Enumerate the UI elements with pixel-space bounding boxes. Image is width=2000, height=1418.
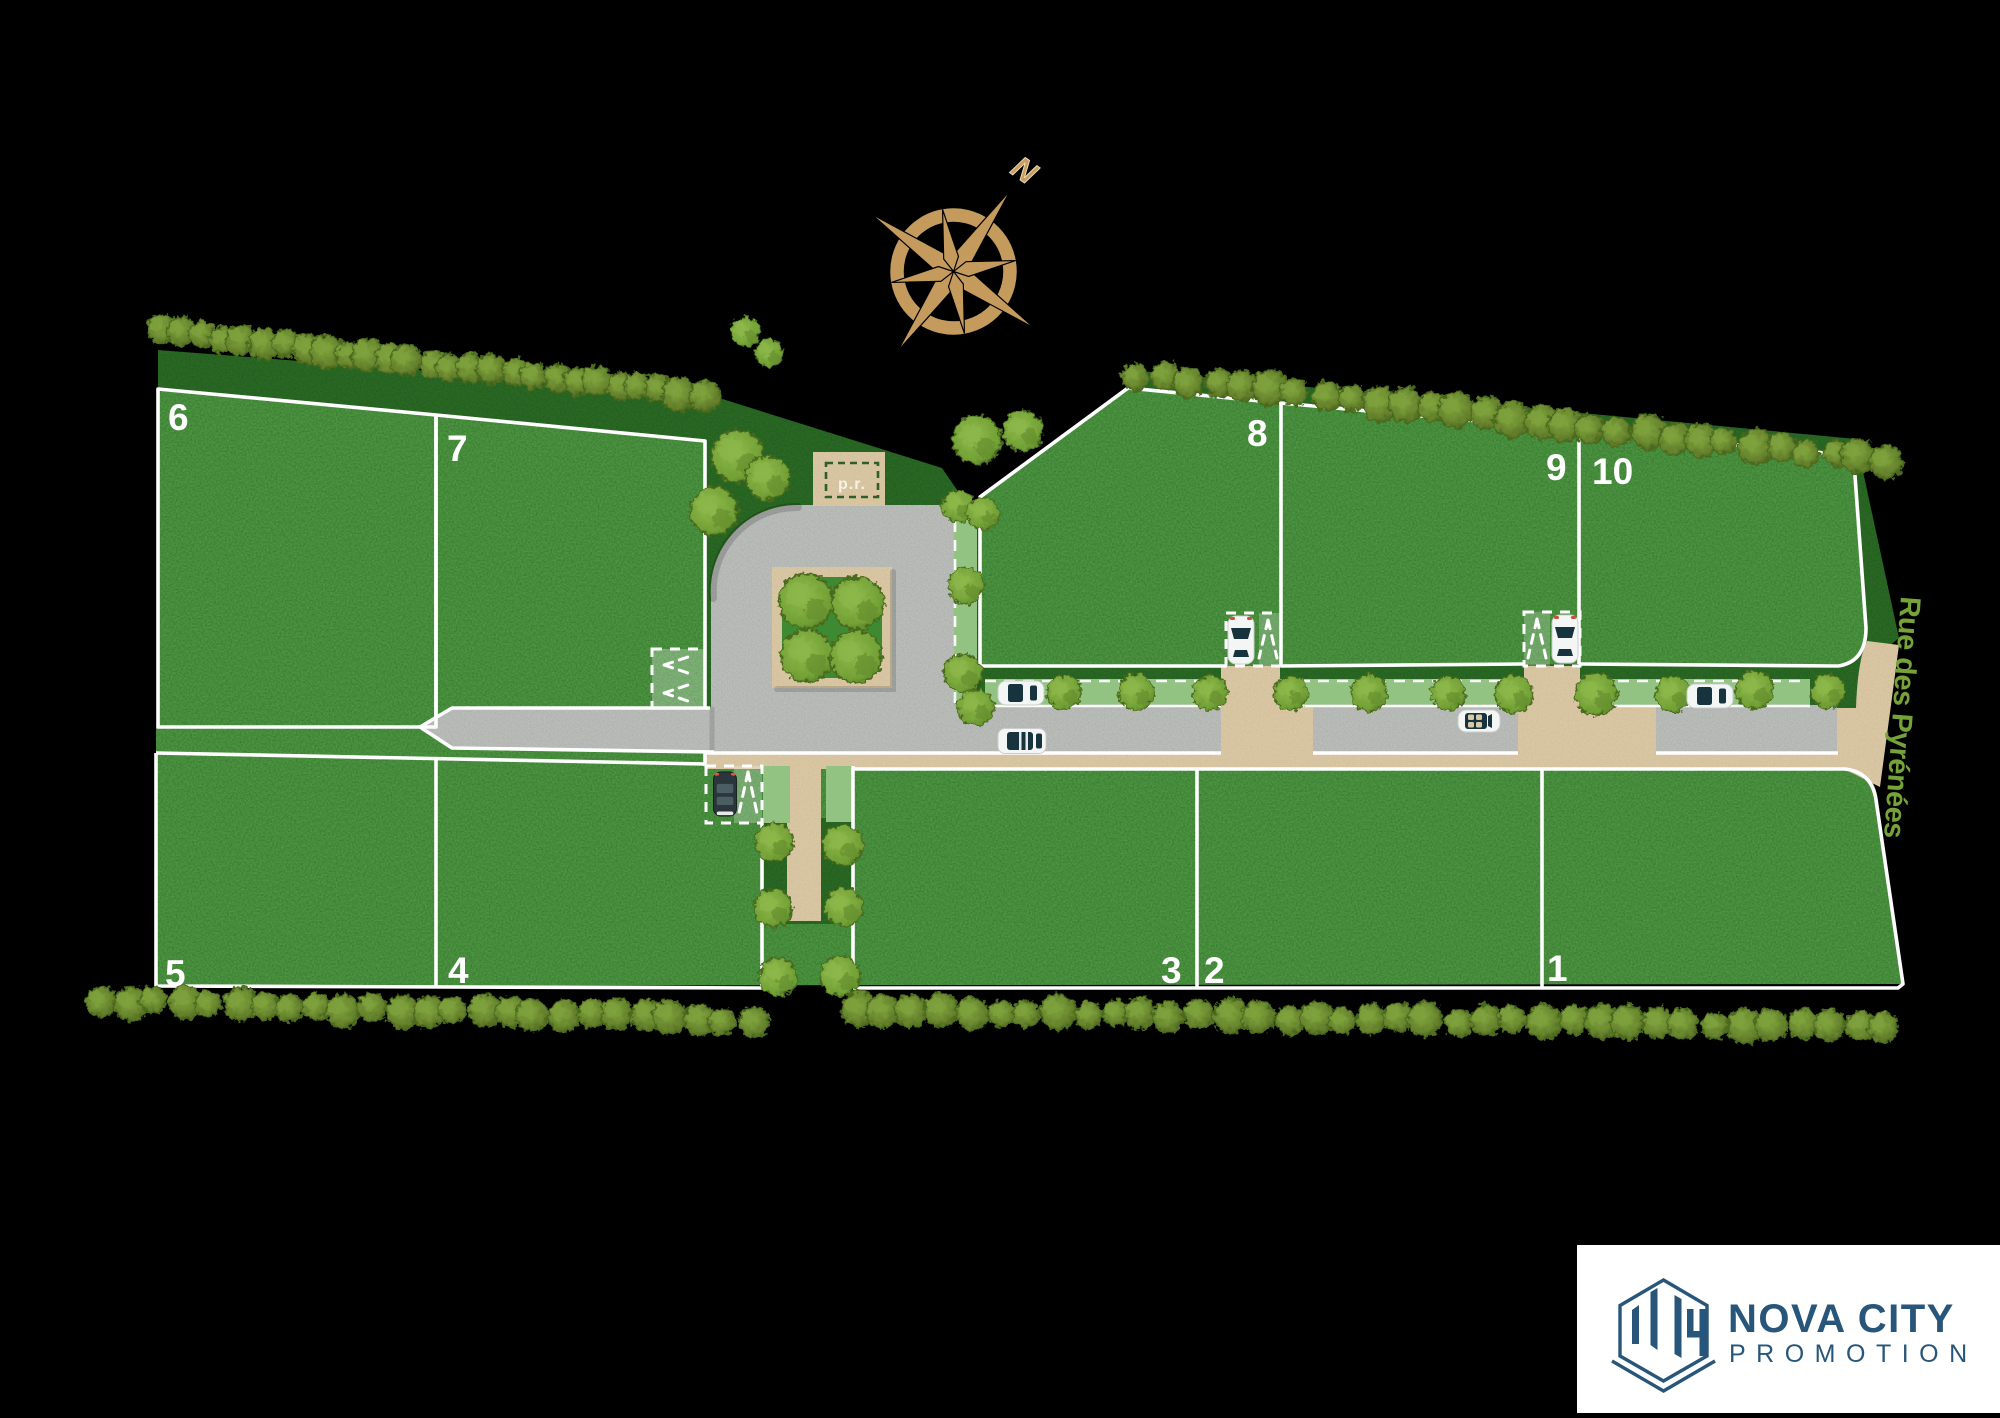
svg-text:p.r.: p.r. bbox=[838, 476, 866, 493]
svg-text:10: 10 bbox=[1592, 451, 1633, 492]
svg-text:7: 7 bbox=[447, 428, 468, 469]
svg-text:6: 6 bbox=[168, 397, 189, 438]
svg-text:NOVA CITY: NOVA CITY bbox=[1728, 1297, 1955, 1341]
svg-text:3: 3 bbox=[1161, 950, 1182, 991]
svg-text:5: 5 bbox=[165, 953, 186, 994]
svg-text:9: 9 bbox=[1546, 447, 1567, 488]
svg-text:8: 8 bbox=[1247, 413, 1268, 454]
svg-text:2: 2 bbox=[1204, 950, 1225, 991]
svg-text:4: 4 bbox=[448, 950, 469, 991]
svg-text:1: 1 bbox=[1547, 948, 1568, 989]
svg-text:PROMOTION: PROMOTION bbox=[1729, 1340, 1978, 1368]
